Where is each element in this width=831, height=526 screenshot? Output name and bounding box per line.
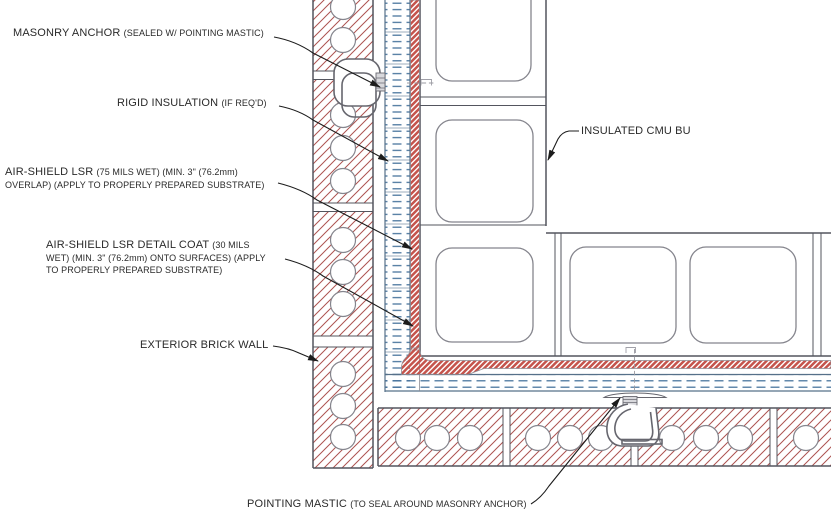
label-air-shield-detail-coat: AIR-SHIELD LSR DETAIL COAT (30 MILS WET)… — [46, 239, 266, 277]
label-exterior-brick-wall: EXTERIOR BRICK WALL — [140, 339, 268, 352]
label-air-shield-lsr: AIR-SHIELD LSR (75 MILS WET) (MIN. 3" (7… — [5, 166, 264, 191]
label-rigid-insulation: RIGID INSULATION (IF REQ'D) — [117, 97, 267, 110]
cmu-wall-vertical — [420, 0, 546, 356]
label-insulated-cmu: INSULATED CMU BU — [581, 125, 691, 138]
leader-exterior-brick-wall — [273, 346, 318, 361]
leader-insulated-cmu — [548, 131, 579, 160]
masonry-anchor-bottom — [604, 393, 666, 446]
label-masonry-anchor: MASONRY ANCHOR (SEALED W/ POINTING MASTI… — [13, 27, 264, 40]
label-pointing-mastic: POINTING MASTIC (TO SEAL AROUND MASONRY … — [247, 498, 527, 511]
detail-drawing-page: MASONRY ANCHOR (SEALED W/ POINTING MASTI… — [0, 0, 831, 526]
